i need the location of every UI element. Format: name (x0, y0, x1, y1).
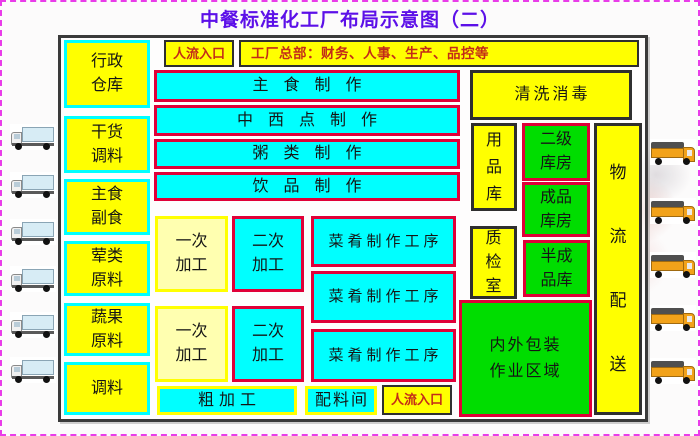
primary-processing-box-1: 一次 加工 (155, 216, 228, 292)
dry-goods-box: 干货 调料 (64, 116, 150, 173)
delivery-truck-left-icon (10, 172, 56, 198)
dish-line-box-2: 菜肴制作工序 (311, 271, 456, 323)
dish-line-box-1: 菜肴制作工序 (311, 216, 456, 267)
headquarters-box: 工厂总部：财务、人事、生产、品控等 (239, 40, 639, 67)
entrance-bottom-box: 人流入口 (382, 385, 452, 415)
seasoning-box: 调料 (64, 362, 150, 415)
cleaning-disinfection-box: 清洗消毒 (470, 70, 632, 120)
supplies-storage-box: 用 品 库 (471, 123, 517, 211)
delivery-truck-right-icon (650, 139, 696, 165)
dish-line-box-3: 菜肴制作工序 (311, 329, 456, 382)
delivery-truck-right-icon (650, 198, 696, 224)
delivery-truck-right-icon (650, 305, 696, 331)
produce-material-box: 蔬果 原料 (64, 303, 150, 356)
delivery-truck-left-icon (10, 266, 56, 292)
pastry-production-row: 中西点制作 (154, 105, 460, 136)
logistics-distribution-box: 物 流 配 送 (594, 123, 642, 415)
page-title: 中餐标准化工厂布局示意图（二） (2, 5, 698, 32)
packaging-area-box: 内外包装 作业区域 (459, 300, 592, 417)
secondary-processing-box-2: 二次 加工 (232, 306, 304, 382)
delivery-truck-left-icon (10, 312, 56, 338)
staple-production-row: 主食制作 (154, 70, 460, 102)
secondary-storage-box: 二级 库房 (522, 123, 590, 181)
delivery-truck-left-icon (10, 357, 56, 383)
admin-warehouse-box: 行政 仓库 (64, 40, 150, 108)
secondary-processing-box-1: 二次 加工 (232, 216, 304, 292)
finished-goods-storage-box: 成品 库房 (522, 182, 590, 237)
delivery-truck-left-icon (10, 219, 56, 245)
delivery-truck-right-icon (650, 358, 696, 384)
staple-food-box: 主食 副食 (64, 179, 150, 235)
delivery-truck-left-icon (10, 124, 56, 150)
beverage-production-row: 饮品制作 (154, 172, 460, 201)
porridge-production-row: 粥类制作 (154, 139, 460, 169)
rough-processing-box: 粗加工 (157, 386, 297, 415)
primary-processing-box-2: 一次 加工 (155, 306, 228, 382)
meat-material-box: 荤类 原料 (64, 241, 150, 296)
semi-finished-storage-box: 半成 品库 (523, 240, 590, 297)
quality-inspection-box: 质 检 室 (470, 226, 517, 299)
factory-layout-slide: 中餐标准化工厂布局示意图（二） 人流入口 工厂总部：财务、人事、生产、品控等 行… (0, 0, 700, 436)
entrance-top-box: 人流入口 (164, 40, 234, 67)
delivery-truck-right-icon (650, 252, 696, 278)
ingredient-room-box: 配料间 (305, 386, 377, 415)
